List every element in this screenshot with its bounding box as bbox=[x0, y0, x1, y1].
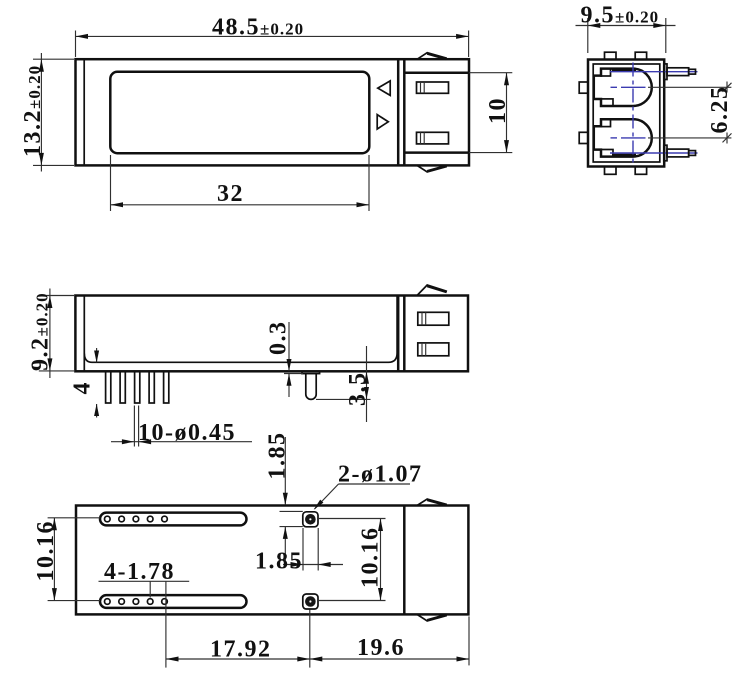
svg-text:4: 4 bbox=[70, 381, 96, 395]
svg-text:10.16: 10.16 bbox=[33, 520, 59, 582]
svg-text:32: 32 bbox=[217, 181, 244, 207]
svg-text:6.25: 6.25 bbox=[707, 86, 733, 134]
svg-text:1.85: 1.85 bbox=[265, 432, 291, 480]
svg-text:19.6: 19.6 bbox=[357, 635, 405, 661]
svg-text:3.5: 3.5 bbox=[345, 372, 371, 407]
svg-text:17.92: 17.92 bbox=[210, 637, 272, 663]
svg-text:10: 10 bbox=[485, 97, 511, 124]
svg-text:1.85: 1.85 bbox=[255, 549, 303, 575]
svg-text:10-ø0.45: 10-ø0.45 bbox=[138, 420, 236, 446]
svg-text:0.3: 0.3 bbox=[266, 321, 292, 356]
svg-text:10.16: 10.16 bbox=[358, 527, 384, 589]
